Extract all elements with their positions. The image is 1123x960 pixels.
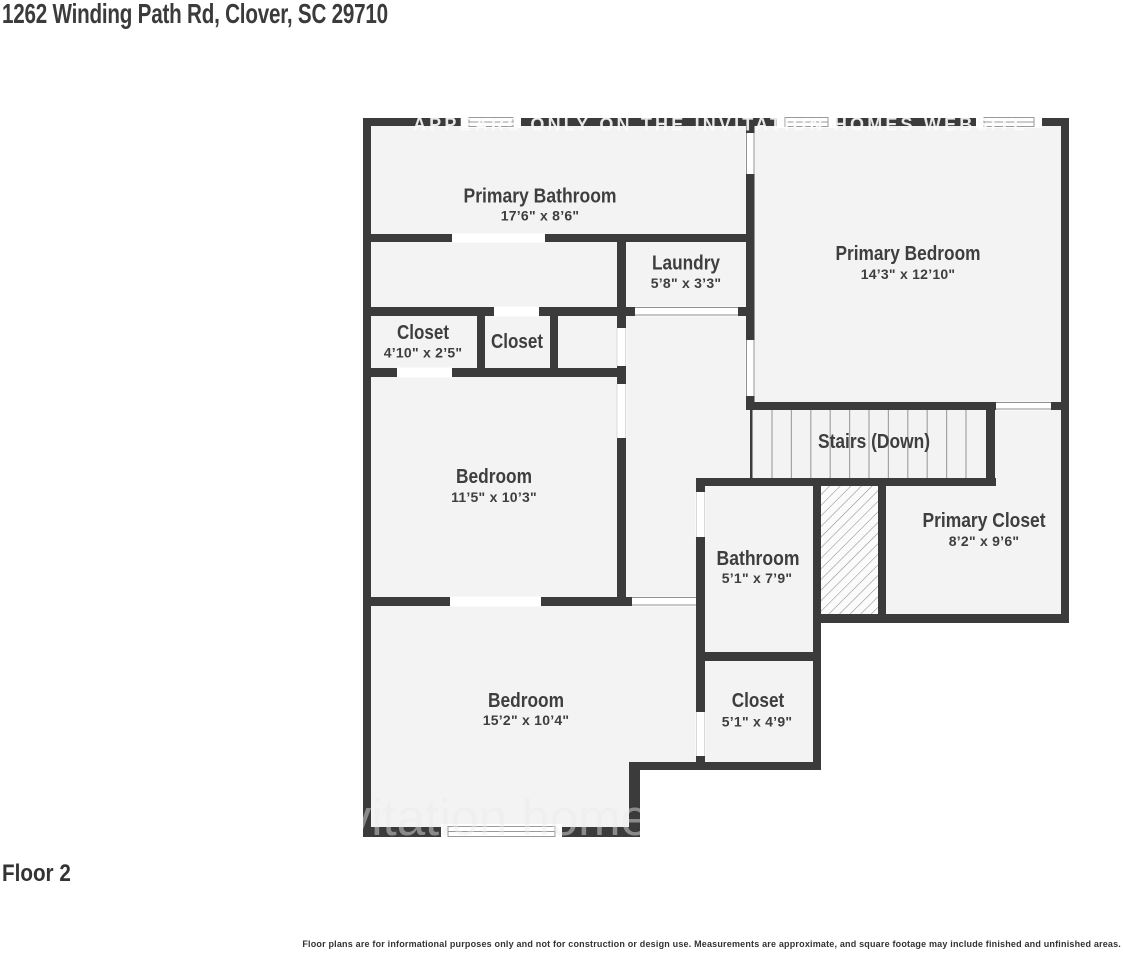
svg-text:5’8" x 3’3": 5’8" x 3’3" <box>651 275 722 291</box>
svg-text:8’2" x 9’6": 8’2" x 9’6" <box>949 533 1020 549</box>
svg-text:Bathroom: Bathroom <box>717 548 800 570</box>
svg-text:4’10" x 2’5": 4’10" x 2’5" <box>384 345 463 361</box>
svg-text:Primary Bathroom: Primary Bathroom <box>464 186 617 208</box>
svg-text:5’1" x 7’9": 5’1" x 7’9" <box>722 570 793 586</box>
svg-text:Laundry: Laundry <box>652 253 721 275</box>
svg-text:Primary Bedroom: Primary Bedroom <box>836 243 981 265</box>
svg-text:14’3" x 12’10": 14’3" x 12’10" <box>861 266 956 282</box>
svg-text:Bedroom: Bedroom <box>456 466 532 488</box>
svg-text:Closet: Closet <box>397 322 449 344</box>
svg-text:5’1" x 4’9": 5’1" x 4’9" <box>722 714 793 730</box>
svg-text:15’2" x 10’4": 15’2" x 10’4" <box>483 712 570 728</box>
svg-text:11’5" x 10’3": 11’5" x 10’3" <box>451 489 537 505</box>
svg-text:Primary Closet: Primary Closet <box>923 510 1046 532</box>
svg-text:Bedroom: Bedroom <box>488 690 564 712</box>
svg-text:Closet: Closet <box>732 690 785 712</box>
svg-text:Closet: Closet <box>491 331 543 353</box>
svg-text:Stairs (Down): Stairs (Down) <box>818 431 930 453</box>
svg-text:17’6" x 8’6": 17’6" x 8’6" <box>501 208 580 224</box>
